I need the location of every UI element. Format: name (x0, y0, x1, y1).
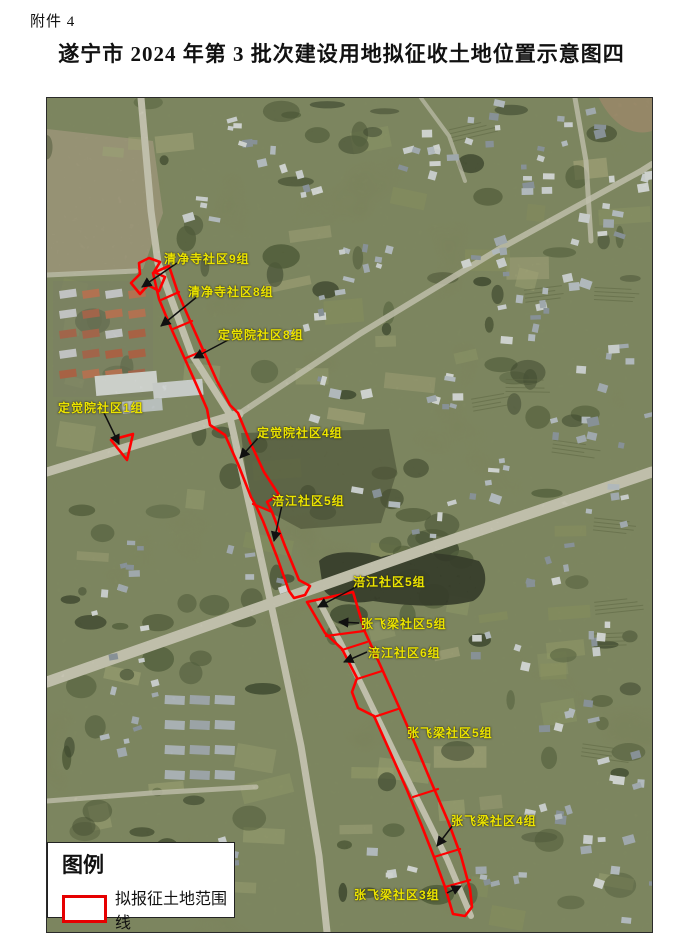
legend-boundary-swatch (62, 895, 107, 923)
map-label: 涪江社区5组 (272, 492, 345, 509)
leader-arrow (339, 622, 359, 623)
map-label: 张飞梁社区4组 (451, 812, 537, 829)
map-label: 张飞梁社区5组 (361, 615, 447, 632)
map-label: 涪江社区5组 (353, 573, 426, 590)
legend-box: 图例 拟报征土地范围线 (47, 842, 235, 918)
map-label: 清净寺社区8组 (188, 283, 274, 300)
attachment-label: 附件 4 (30, 10, 75, 31)
map-label: 定觉院社区8组 (218, 326, 304, 343)
map-label: 涪江社区6组 (368, 644, 441, 661)
document-page: 附件 4 遂宁市 2024 年第 3 批次建设用地拟征收土地位置示意图四 (0, 0, 683, 934)
legend-heading: 图例 (62, 849, 104, 879)
satellite-map: 清净寺社区9组清净寺社区8组定觉院社区8组定觉院社区1组定觉院社区4组涪江社区5… (46, 97, 653, 933)
legend-item: 拟报征土地范围线 (62, 885, 234, 933)
map-label: 清净寺社区9组 (164, 250, 250, 267)
map-label: 张飞梁社区3组 (354, 886, 440, 903)
page-title: 遂宁市 2024 年第 3 批次建设用地拟征收土地位置示意图四 (0, 38, 683, 68)
map-label: 定觉院社区1组 (58, 399, 144, 416)
map-label: 张飞梁社区5组 (407, 724, 493, 741)
map-label: 定觉院社区4组 (257, 424, 343, 441)
legend-item-label: 拟报征土地范围线 (115, 885, 234, 933)
map-canvas (47, 98, 652, 932)
